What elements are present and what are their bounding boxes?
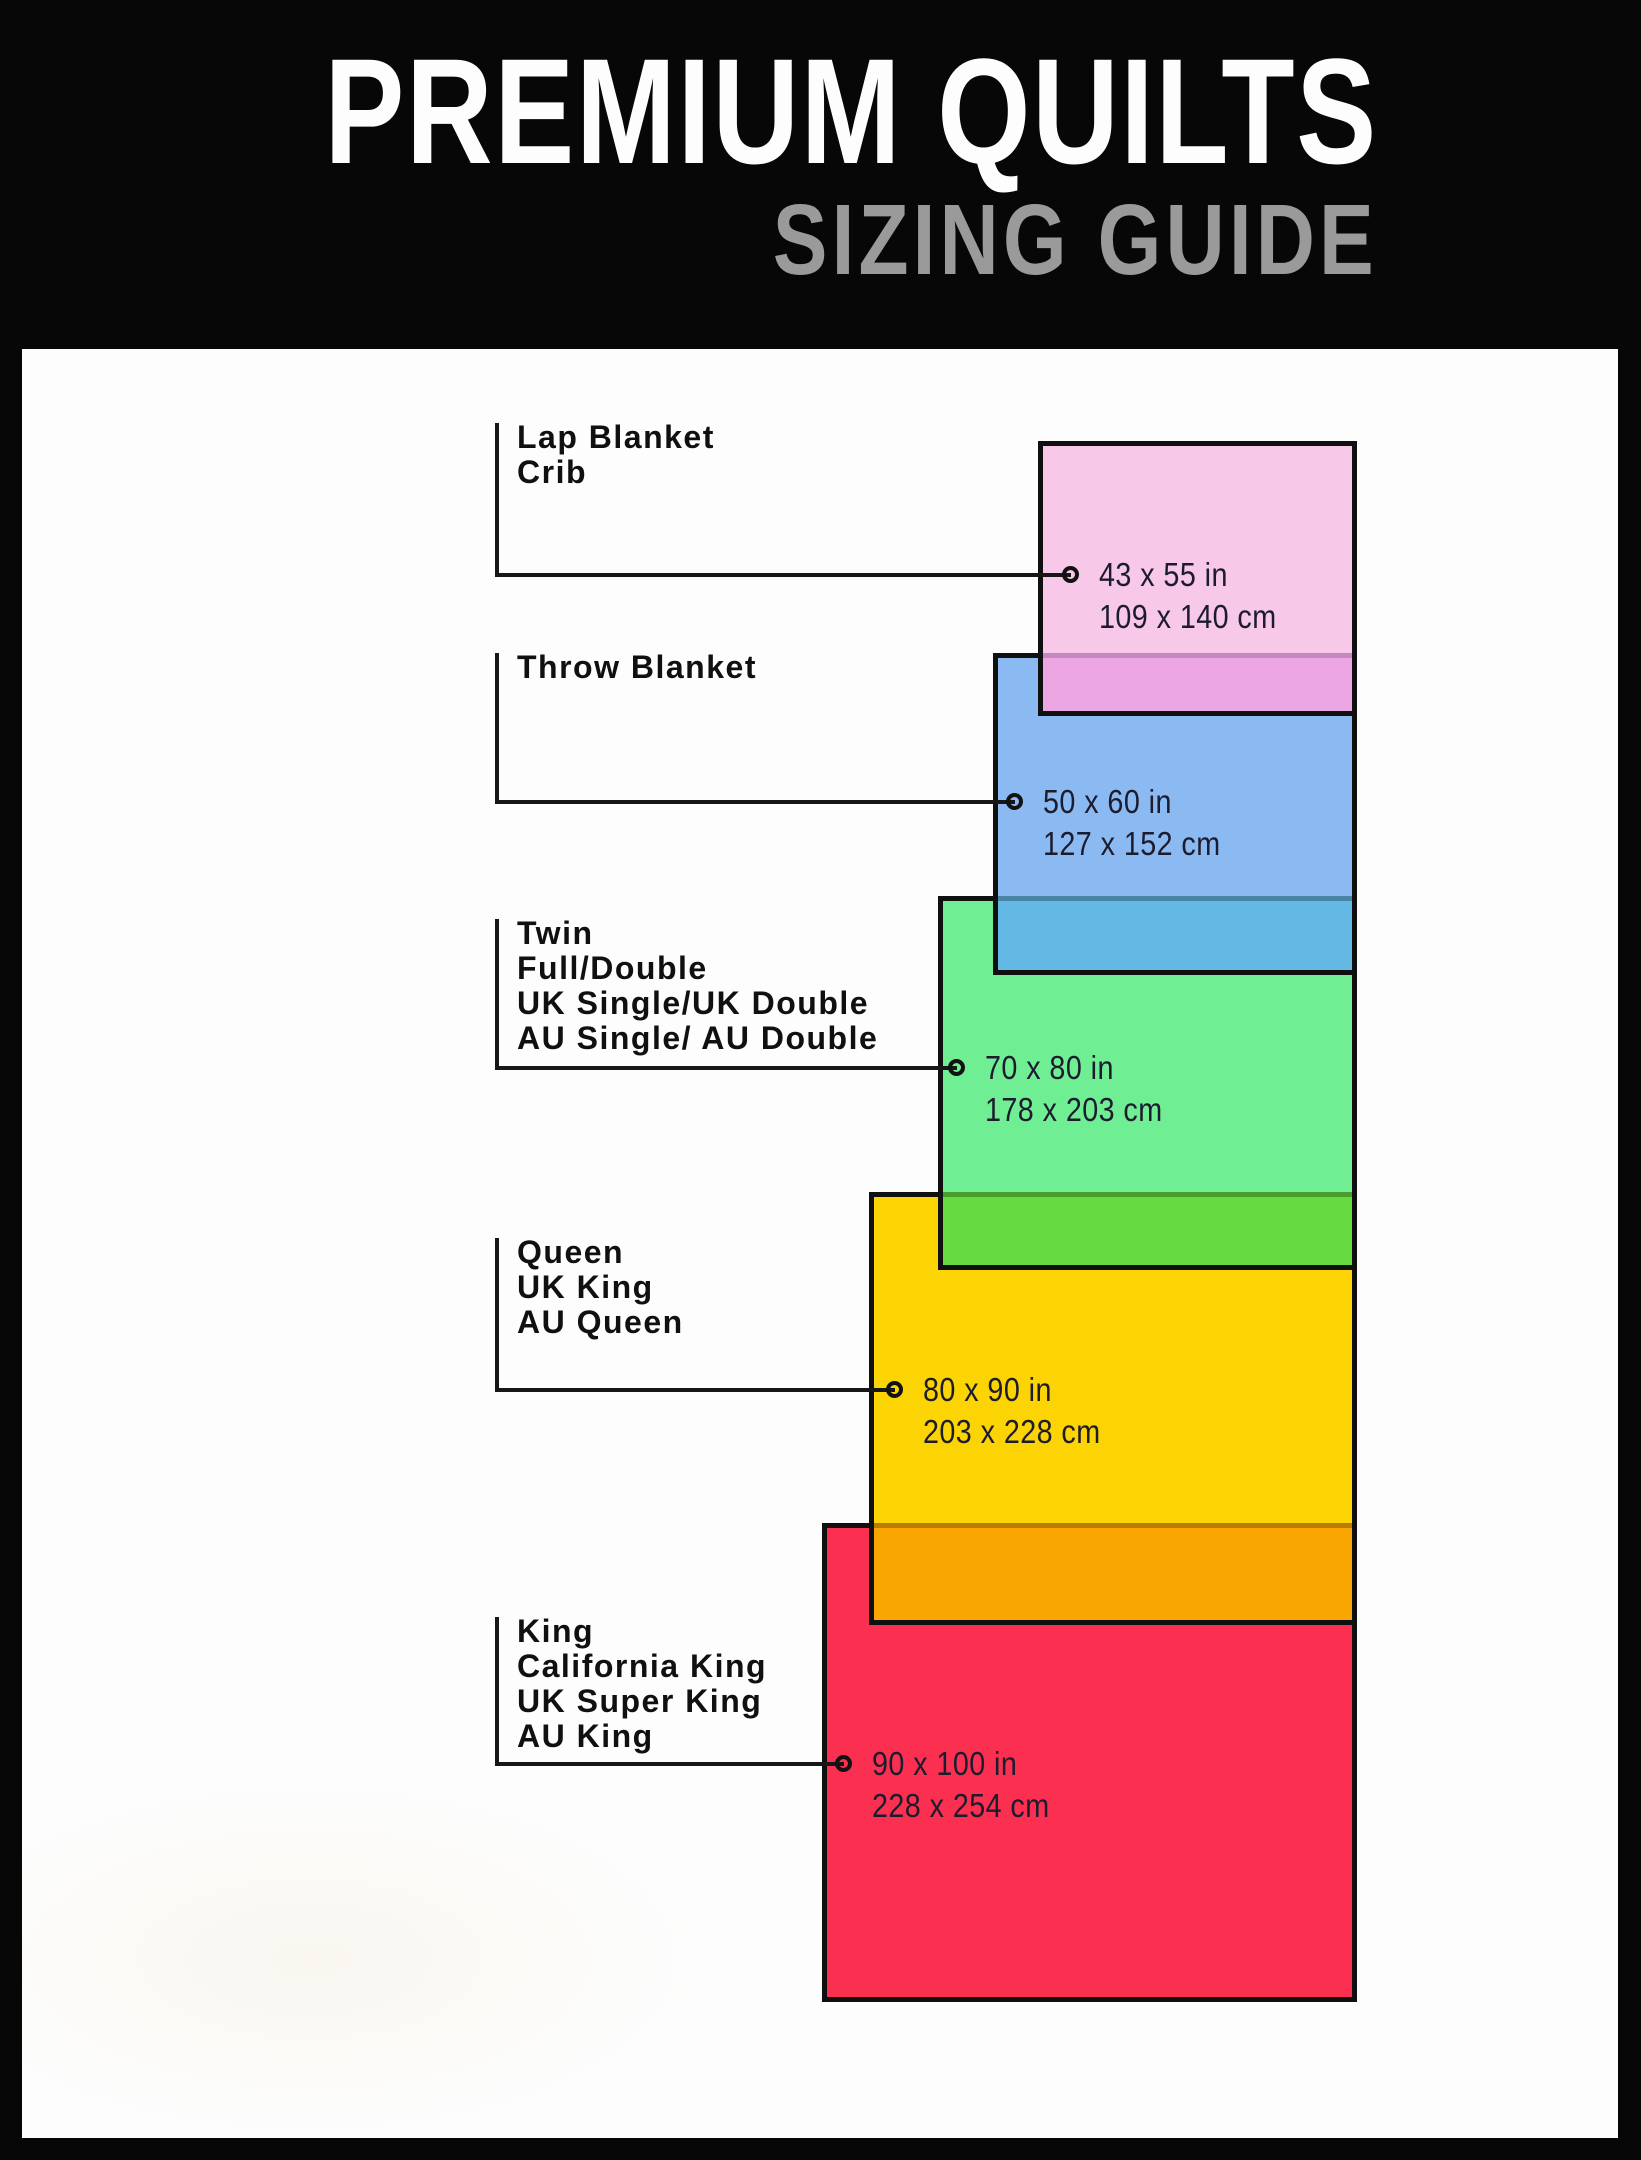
size-cm: 228 x 254 cm — [872, 1785, 1050, 1827]
label-line: AU Queen — [517, 1305, 684, 1340]
quilt-size-lap-blanket-crib: 43 x 55 in 109 x 140 cm — [1099, 554, 1277, 638]
label-line: UK Single/UK Double — [517, 986, 878, 1021]
connector-vline-king — [495, 1617, 499, 1766]
size-inches: 80 x 90 in — [923, 1369, 1101, 1411]
connector-dot-lap-blanket-crib — [1062, 566, 1079, 583]
quilt-size-king: 90 x 100 in 228 x 254 cm — [872, 1743, 1050, 1827]
quilt-size-twin: 70 x 80 in 178 x 203 cm — [985, 1047, 1163, 1131]
content-panel — [22, 349, 1618, 2138]
connector-hline-lap-blanket-crib — [497, 573, 1071, 577]
connector-dot-queen — [886, 1381, 903, 1398]
sizing-guide-infographic: PREMIUM QUILTS SIZING GUIDE King Califor… — [0, 0, 1641, 2160]
connector-vline-throw-blanket — [495, 653, 499, 804]
size-inches: 90 x 100 in — [872, 1743, 1050, 1785]
label-line: Crib — [517, 455, 715, 490]
connector-dot-king — [835, 1755, 852, 1772]
page-title: PREMIUM QUILTS — [325, 36, 1378, 186]
size-inches: 43 x 55 in — [1099, 554, 1277, 596]
label-line: AU King — [517, 1719, 767, 1754]
label-line: California King — [517, 1649, 767, 1684]
label-line: Lap Blanket — [517, 420, 715, 455]
quilt-label-twin: Twin Full/Double UK Single/UK Double AU … — [517, 916, 878, 1056]
size-cm: 178 x 203 cm — [985, 1089, 1163, 1131]
connector-hline-queen — [497, 1388, 895, 1392]
page-subtitle: SIZING GUIDE — [773, 190, 1378, 290]
connector-hline-twin — [497, 1066, 957, 1070]
label-line: AU Single/ AU Double — [517, 1021, 878, 1056]
label-line: UK Super King — [517, 1684, 767, 1719]
label-line: Twin — [517, 916, 878, 951]
quilt-label-queen: Queen UK King AU Queen — [517, 1235, 684, 1340]
quilt-label-throw-blanket: Throw Blanket — [517, 650, 757, 685]
connector-dot-twin — [948, 1059, 965, 1076]
quilt-label-king: King California King UK Super King AU Ki… — [517, 1614, 767, 1754]
label-line: Full/Double — [517, 951, 878, 986]
connector-vline-lap-blanket-crib — [495, 423, 499, 577]
connector-dot-throw-blanket — [1006, 793, 1023, 810]
size-inches: 50 x 60 in — [1043, 781, 1221, 823]
size-cm: 203 x 228 cm — [923, 1411, 1101, 1453]
quilt-label-lap-blanket-crib: Lap Blanket Crib — [517, 420, 715, 490]
label-line: Throw Blanket — [517, 650, 757, 685]
label-line: UK King — [517, 1270, 684, 1305]
connector-vline-twin — [495, 919, 499, 1070]
connector-hline-throw-blanket — [497, 800, 1015, 804]
connector-hline-king — [497, 1762, 844, 1766]
quilt-size-throw-blanket: 50 x 60 in 127 x 152 cm — [1043, 781, 1221, 865]
label-line: King — [517, 1614, 767, 1649]
size-cm: 109 x 140 cm — [1099, 596, 1277, 638]
size-inches: 70 x 80 in — [985, 1047, 1163, 1089]
quilt-size-queen: 80 x 90 in 203 x 228 cm — [923, 1369, 1101, 1453]
size-cm: 127 x 152 cm — [1043, 823, 1221, 865]
connector-vline-queen — [495, 1238, 499, 1392]
label-line: Queen — [517, 1235, 684, 1270]
